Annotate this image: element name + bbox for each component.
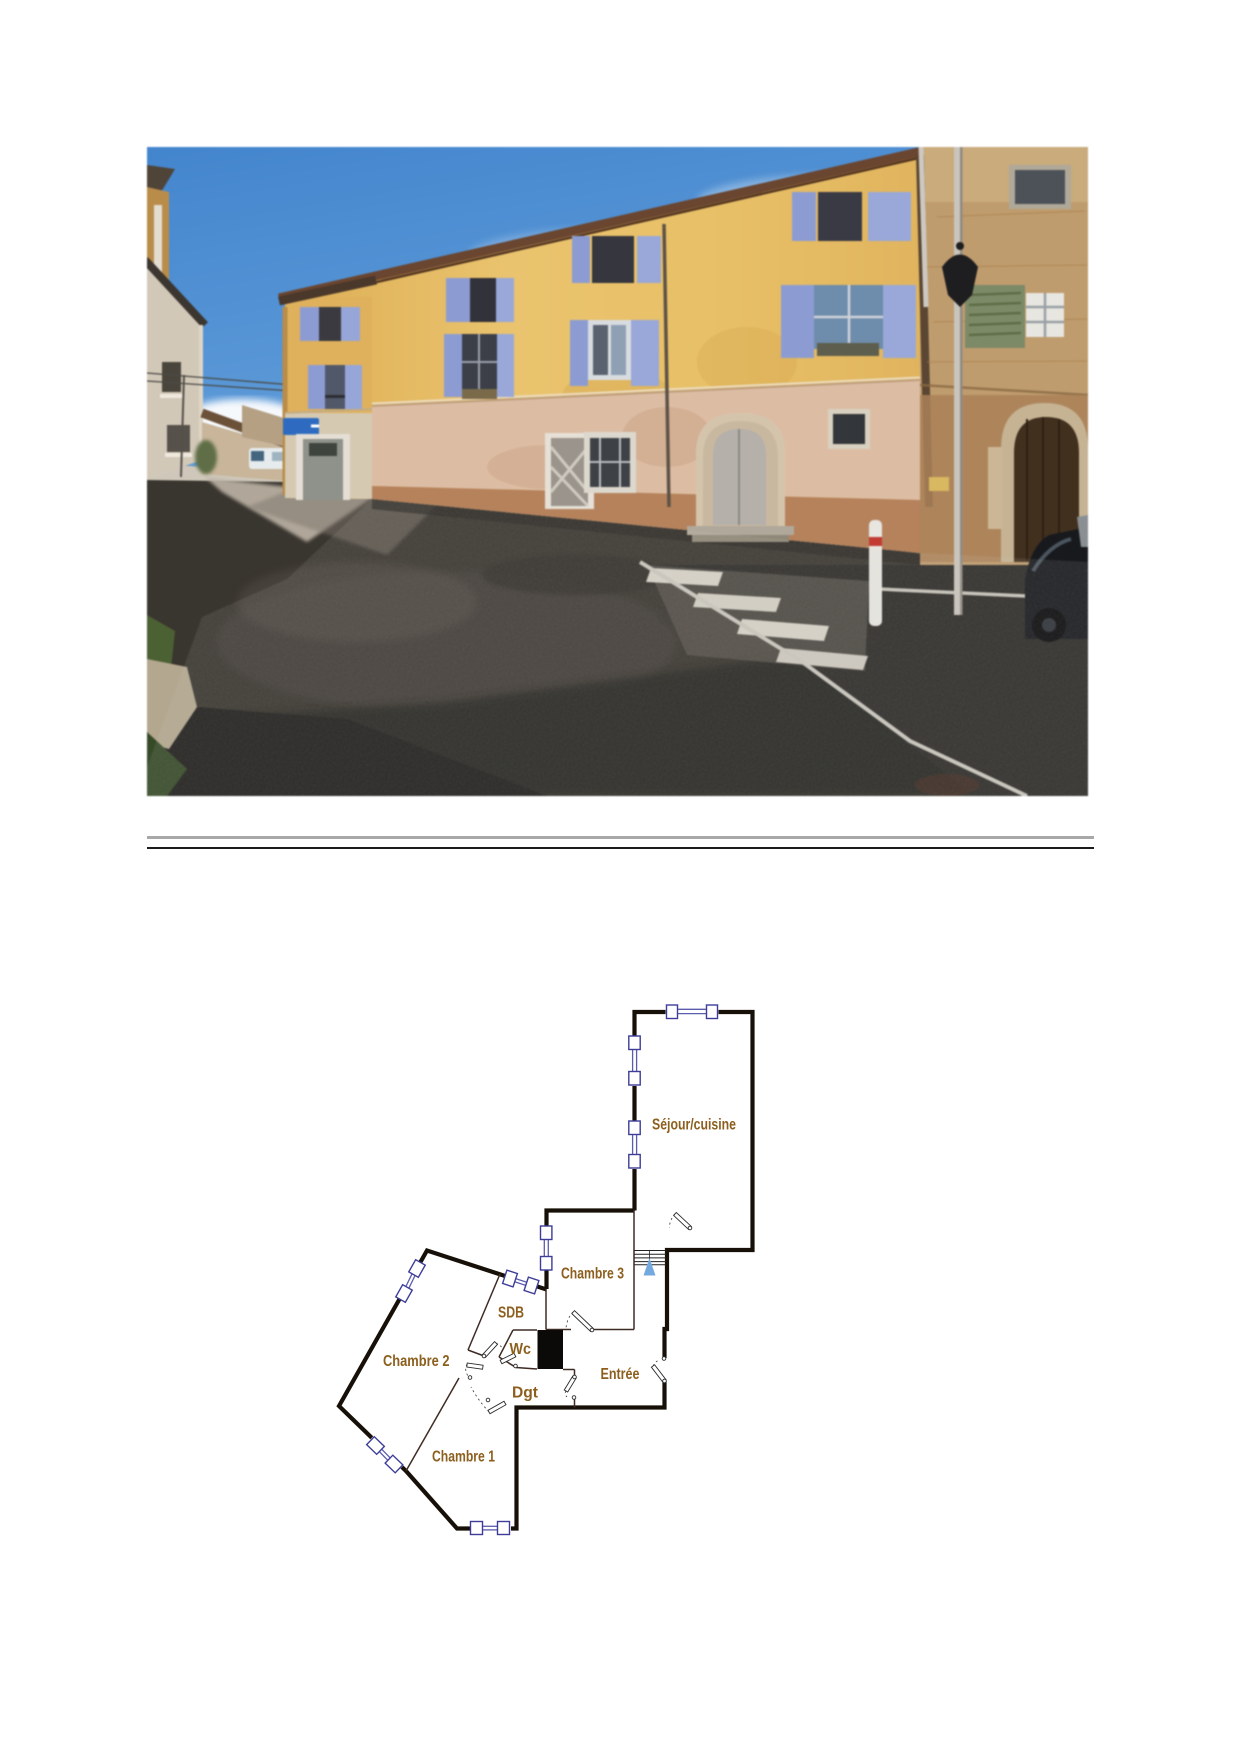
svg-text:Wc: Wc: [510, 1341, 532, 1358]
svg-text:Entrée: Entrée: [601, 1366, 640, 1383]
svg-text:SDB: SDB: [498, 1305, 524, 1322]
svg-text:Chambre 3: Chambre 3: [561, 1266, 624, 1283]
svg-text:Dgt: Dgt: [512, 1385, 539, 1402]
svg-text:Séjour/cuisine: Séjour/cuisine: [652, 1117, 736, 1134]
svg-text:Chambre 2: Chambre 2: [383, 1353, 450, 1370]
svg-text:Chambre 1: Chambre 1: [432, 1449, 495, 1466]
